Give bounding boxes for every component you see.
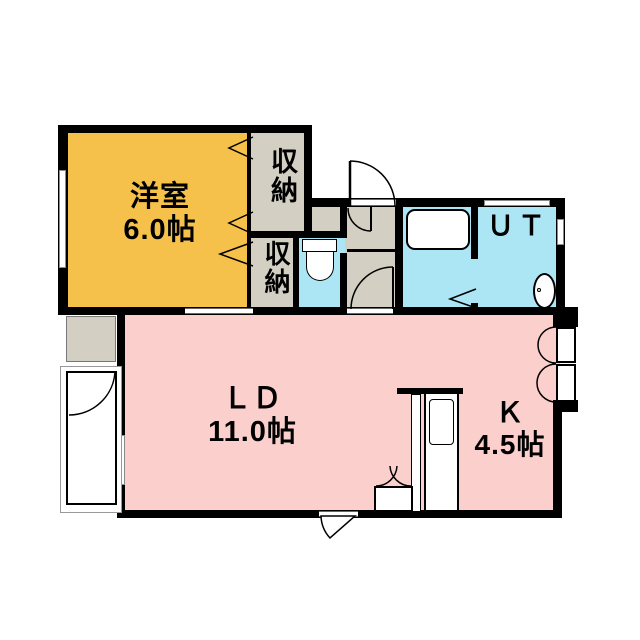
western-room-size: 6.0帖 <box>75 214 245 247</box>
bottom-door-opening <box>319 511 358 517</box>
label-storage-upper: 収納 <box>263 147 302 205</box>
utility-name: ＵＴ <box>480 211 556 242</box>
window-utility-right <box>557 219 564 245</box>
label-utility: ＵＴ <box>480 211 556 242</box>
western-ld-opening <box>185 308 253 314</box>
floor-plan: 洋室 6.0帖 ＬＤ 11.0帖 Ｋ 4.5帖 ＵＴ 収納 収納 <box>0 0 640 640</box>
western-room-name: 洋室 <box>75 181 245 214</box>
wall-mid-horizontal <box>58 307 578 315</box>
label-living-dining: ＬＤ 11.0帖 <box>165 383 340 450</box>
bottom-door-fan <box>321 516 355 538</box>
ld-name: ＬＤ <box>165 383 340 416</box>
wall-right-upper <box>556 198 565 313</box>
bathtub <box>406 209 470 250</box>
wall-storage-left <box>247 130 251 310</box>
kitchen-name: Ｋ <box>455 397 565 429</box>
wall-hall-bath <box>395 205 403 312</box>
kitchen-size: 4.5帖 <box>455 429 565 461</box>
window-western-left <box>59 170 66 268</box>
ld-size: 11.0帖 <box>165 416 340 449</box>
k-closet-panel-upper <box>556 327 576 363</box>
left-gray-box <box>66 316 116 362</box>
window-utility-top <box>484 200 550 206</box>
room-hall <box>343 205 399 312</box>
label-storage-lower: 収納 <box>258 240 295 296</box>
ld-storage-box <box>374 486 413 512</box>
label-kitchen: Ｋ 4.5帖 <box>455 397 565 461</box>
hall-ld-opening <box>347 308 393 314</box>
wall-storage-right <box>304 125 312 235</box>
washer-drain-dot <box>537 288 541 292</box>
wall-hall-left-b <box>340 253 347 312</box>
balcony-inner <box>66 371 117 505</box>
wall-hall-left-a <box>340 203 347 237</box>
toilet-tank <box>302 239 337 252</box>
entrance-opening <box>349 199 396 206</box>
kitchen-sink <box>429 399 454 445</box>
wall-bath-utility-stub <box>471 303 478 312</box>
hall-divider-line <box>347 249 395 252</box>
wall-bath-utility <box>471 205 478 259</box>
label-western-room: 洋室 6.0帖 <box>75 181 245 248</box>
toilet-bowl <box>306 252 334 281</box>
wall-top <box>58 125 312 133</box>
